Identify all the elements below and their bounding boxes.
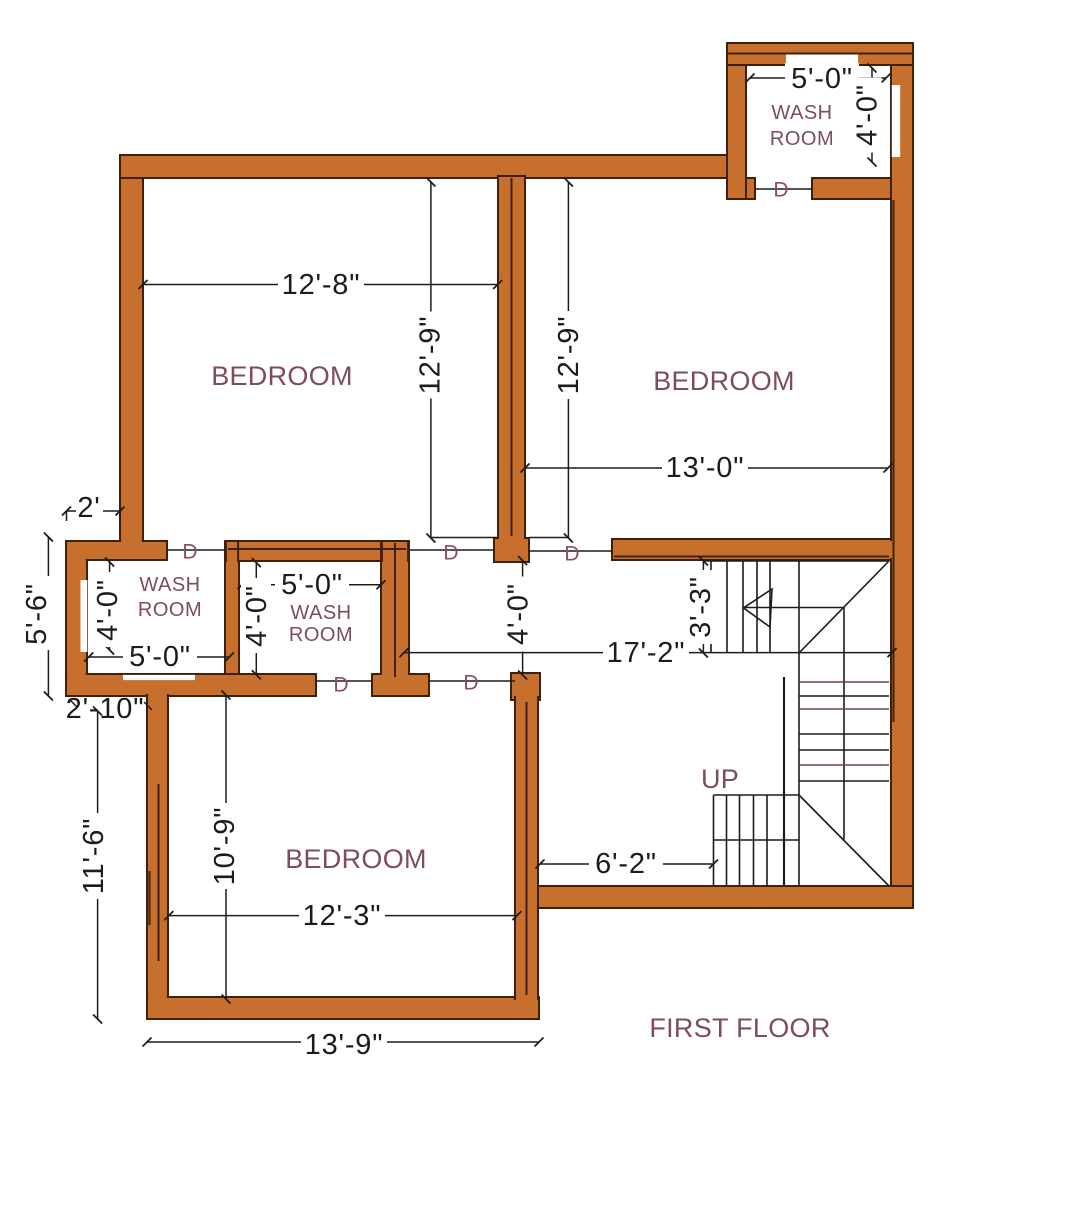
svg-text:BEDROOM: BEDROOM	[285, 844, 427, 874]
svg-text:4'-0": 4'-0"	[852, 84, 884, 146]
svg-text:5'-0": 5'-0"	[281, 569, 343, 601]
svg-text:2'-10": 2'-10"	[66, 693, 145, 725]
svg-text:4'-0": 4'-0"	[241, 585, 273, 647]
svg-text:D: D	[773, 179, 788, 202]
svg-text:ROOM: ROOM	[770, 128, 834, 150]
svg-text:12'-9": 12'-9"	[415, 316, 447, 395]
svg-text:12'-3": 12'-3"	[303, 900, 382, 932]
svg-text:3'-3": 3'-3"	[685, 576, 717, 638]
svg-text:FIRST FLOOR: FIRST FLOOR	[649, 1013, 830, 1043]
svg-text:D: D	[182, 541, 197, 564]
svg-text:10'-9": 10'-9"	[209, 807, 241, 886]
svg-text:11'-6": 11'-6"	[78, 818, 110, 895]
svg-text:UP: UP	[701, 764, 739, 794]
svg-text:17'-2": 17'-2"	[607, 637, 686, 669]
svg-text:D: D	[333, 674, 348, 697]
svg-text:6'-2": 6'-2"	[595, 848, 657, 880]
svg-text:4'-0": 4'-0"	[92, 579, 124, 641]
svg-text:BEDROOM: BEDROOM	[653, 366, 795, 396]
svg-text:5'-6": 5'-6"	[21, 583, 53, 645]
svg-text:WASH: WASH	[139, 574, 200, 596]
svg-text:D: D	[564, 543, 579, 566]
svg-text:12'-8": 12'-8"	[282, 269, 361, 301]
svg-text:13'-0": 13'-0"	[666, 452, 745, 484]
svg-text:2': 2'	[77, 492, 100, 524]
svg-text:WASH: WASH	[771, 102, 832, 124]
svg-text:4'-0": 4'-0"	[503, 583, 535, 645]
svg-text:12'-9": 12'-9"	[553, 316, 585, 395]
svg-text:ROOM: ROOM	[289, 624, 353, 646]
svg-text:WASH: WASH	[290, 602, 351, 624]
svg-text:D: D	[463, 672, 478, 695]
svg-text:D: D	[443, 542, 458, 565]
svg-text:5'-0": 5'-0"	[129, 641, 191, 673]
svg-text:BEDROOM: BEDROOM	[211, 361, 353, 391]
svg-text:13'-9": 13'-9"	[305, 1029, 384, 1061]
svg-text:ROOM: ROOM	[138, 599, 202, 621]
svg-text:5'-0": 5'-0"	[791, 63, 853, 95]
